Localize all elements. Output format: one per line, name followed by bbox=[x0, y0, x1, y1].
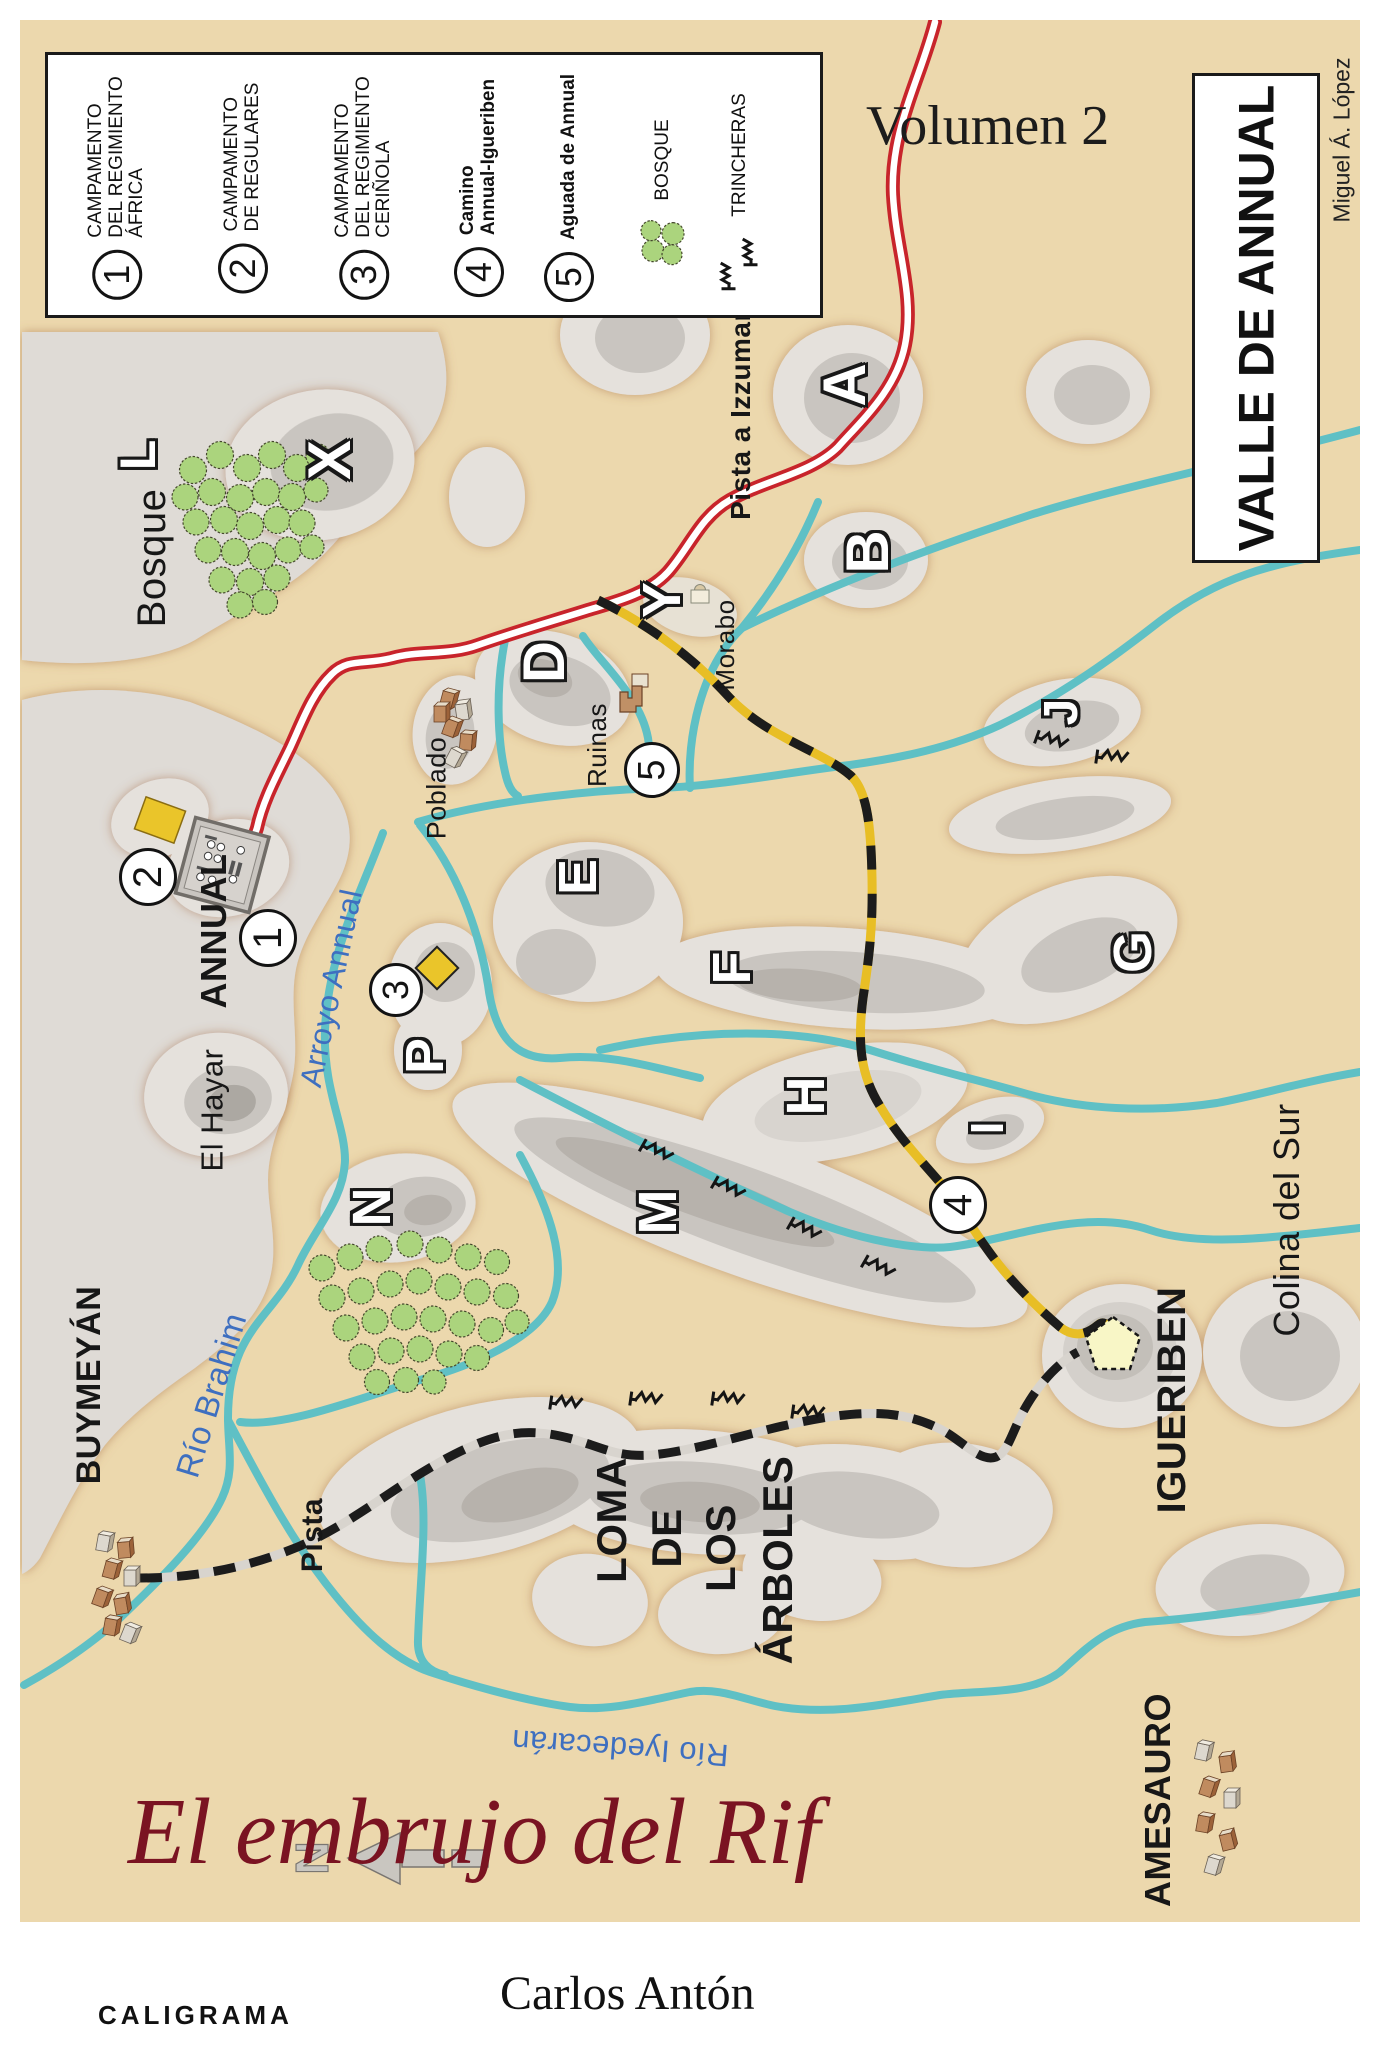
map-title: VALLE DE ANNUAL bbox=[1227, 85, 1285, 552]
legend-circle-5: 5 bbox=[544, 252, 594, 302]
label-igueriben: IGUERIBEN bbox=[1152, 1287, 1192, 1514]
legend-box: 1 CAMPAMENTO DEL REGIMIENTO ÁFRICA 2 CAM… bbox=[45, 52, 823, 318]
marker-1-campamento-africa: 1 bbox=[239, 909, 297, 967]
publisher-logo: CALIGRAMA bbox=[98, 2000, 293, 2031]
hill-letter-x: X bbox=[300, 440, 360, 480]
legend-label-bosque: BOSQUE bbox=[653, 119, 674, 200]
legend-label-trincheras: TRINCHERAS bbox=[730, 93, 751, 217]
label-colina-del-sur: Colina del Sur bbox=[1269, 1103, 1305, 1336]
legend-label-4: Camino Annual-Igueriben bbox=[458, 79, 499, 235]
hill-letter-p: P bbox=[398, 1038, 452, 1074]
hill-letter-b: B bbox=[838, 530, 898, 573]
hill-letter-y: Y bbox=[635, 582, 689, 618]
label-pista-izzumar: Pista a Izzumar bbox=[727, 310, 755, 520]
label-poblado: Poblado bbox=[424, 737, 451, 840]
label-loma-los: LOS bbox=[700, 1504, 742, 1592]
hill-letter-n: N bbox=[345, 1188, 399, 1227]
legend-item-campamento-africa: 1 CAMPAMENTO DEL REGIMIENTO ÁFRICA bbox=[86, 76, 148, 300]
legend-item-campamento-regulares: 2 CAMPAMENTO DE REGULARES bbox=[218, 83, 268, 294]
legend-label-1: CAMPAMENTO DEL REGIMIENTO ÁFRICA bbox=[86, 76, 148, 238]
marker-5-aguada: 5 bbox=[624, 742, 680, 798]
label-el-hayar: El Hayar bbox=[197, 1049, 228, 1172]
book-map-page: N L X A B Y D E F G J H I M N P Bosque P… bbox=[0, 0, 1400, 2056]
volume-title: Volumen 2 bbox=[866, 94, 1109, 158]
hill-letter-i: I bbox=[964, 1122, 1010, 1135]
label-loma-arboles: ÁRBOLES bbox=[757, 1456, 799, 1665]
hill-letter-f: F bbox=[705, 952, 759, 985]
legend-item-campamento-cerinola: 3 CAMPAMENTO DEL REGIMIENTO CERIÑOLA bbox=[333, 76, 395, 300]
hill-letter-d: D bbox=[516, 641, 574, 683]
book-title: El embrujo del Rif bbox=[128, 1778, 820, 1886]
legend-item-trincheras: TRINCHERAS bbox=[717, 93, 763, 293]
label-annual: ANNUAL bbox=[196, 854, 232, 1009]
label-bosque: Bosque bbox=[132, 489, 172, 628]
marker-4-camino: 4 bbox=[929, 1176, 987, 1234]
legend-item-camino: 4 Camino Annual-Igueriben bbox=[454, 79, 504, 297]
label-amesauro: AMESAURO bbox=[1140, 1693, 1176, 1907]
legend-label-5: Aguada de Annual bbox=[559, 74, 580, 240]
legend-circle-1: 1 bbox=[92, 250, 142, 300]
map-title-box: VALLE DE ANNUAL bbox=[1192, 73, 1320, 563]
hill-letter-l: L bbox=[113, 440, 163, 471]
marker-2-campamento-regulares: 2 bbox=[119, 848, 177, 906]
marker-3-campamento-cerinola: 3 bbox=[369, 963, 423, 1017]
author-name: Carlos Antón bbox=[500, 1966, 755, 2021]
hill-letter-e: E bbox=[551, 859, 605, 895]
hill-letter-g: G bbox=[1106, 931, 1160, 973]
bosque-icon bbox=[640, 213, 686, 267]
label-pista: Pista bbox=[298, 1498, 328, 1572]
legend-circle-2: 2 bbox=[218, 243, 268, 293]
label-ruinas: Ruinas bbox=[584, 703, 610, 787]
legend-circle-3: 3 bbox=[339, 250, 389, 300]
cartographer-credit: Miguel Á. López bbox=[1329, 58, 1356, 223]
trincheras-icon bbox=[717, 229, 763, 293]
legend-label-2: CAMPAMENTO DE REGULARES bbox=[222, 83, 263, 232]
hill-letter-a: A bbox=[815, 363, 875, 406]
label-buymeyan: BUYMEYÁN bbox=[72, 1286, 106, 1485]
legend-label-3: CAMPAMENTO DEL REGIMIENTO CERIÑOLA bbox=[333, 76, 395, 238]
label-loma-de: DE bbox=[646, 1508, 688, 1567]
legend-circle-4: 4 bbox=[454, 247, 504, 297]
hill-letter-m: M bbox=[631, 1190, 685, 1235]
hill-letter-h: H bbox=[779, 1077, 833, 1116]
hill-letter-j: J bbox=[1038, 699, 1086, 726]
label-loma: LOMA bbox=[591, 1457, 633, 1583]
legend-item-bosque: BOSQUE bbox=[640, 119, 686, 266]
legend-item-aguada: 5 Aguada de Annual bbox=[544, 74, 594, 302]
label-morabo: Morabo bbox=[712, 599, 738, 690]
